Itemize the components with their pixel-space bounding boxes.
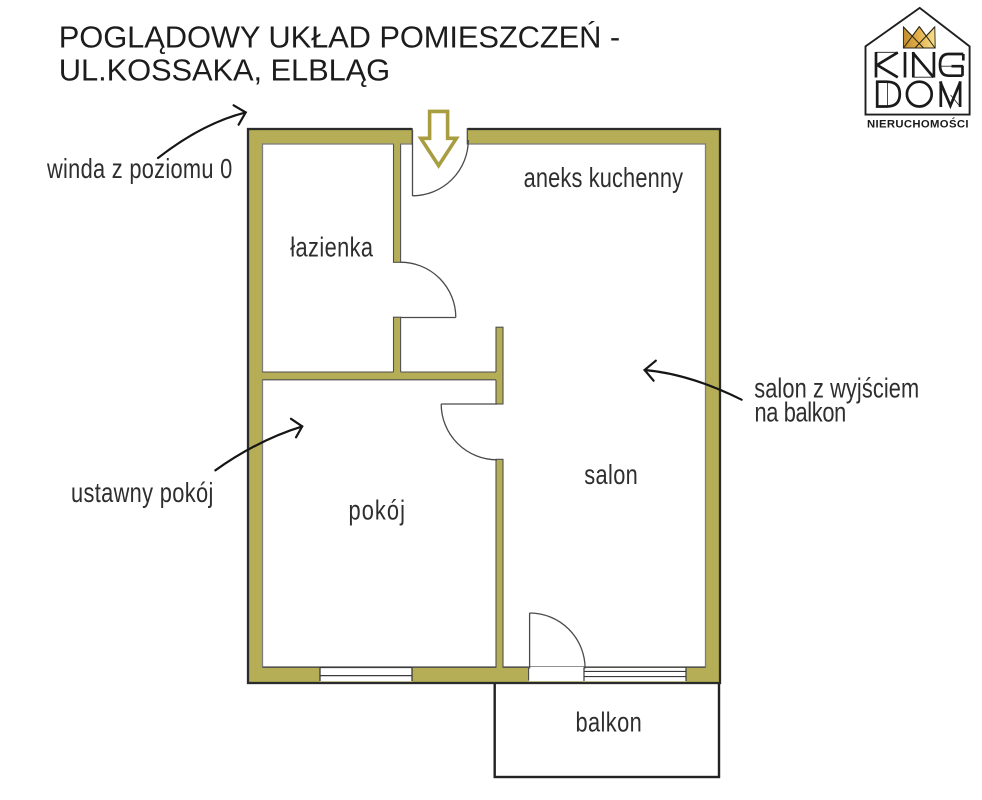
svg-text:łazienka: łazienka xyxy=(290,232,373,263)
svg-text:balkon: balkon xyxy=(576,707,643,738)
svg-text:UL.KOSSAKA, ELBLĄG: UL.KOSSAKA, ELBLĄG xyxy=(59,52,390,87)
svg-text:POGLĄDOWY UKŁAD POMIESZCZEŃ -: POGLĄDOWY UKŁAD POMIESZCZEŃ - xyxy=(59,19,620,54)
svg-text:pokój: pokój xyxy=(349,495,407,526)
svg-text:aneks kuchenny: aneks kuchenny xyxy=(524,163,684,194)
svg-text:NIERUCHOMOŚCI: NIERUCHOMOŚCI xyxy=(867,118,969,131)
svg-text:ustawny pokój: ustawny pokój xyxy=(71,477,214,508)
svg-text:winda z poziomu 0: winda z poziomu 0 xyxy=(46,154,232,185)
svg-text:na balkon: na balkon xyxy=(755,397,846,428)
svg-text:salon: salon xyxy=(584,460,638,491)
